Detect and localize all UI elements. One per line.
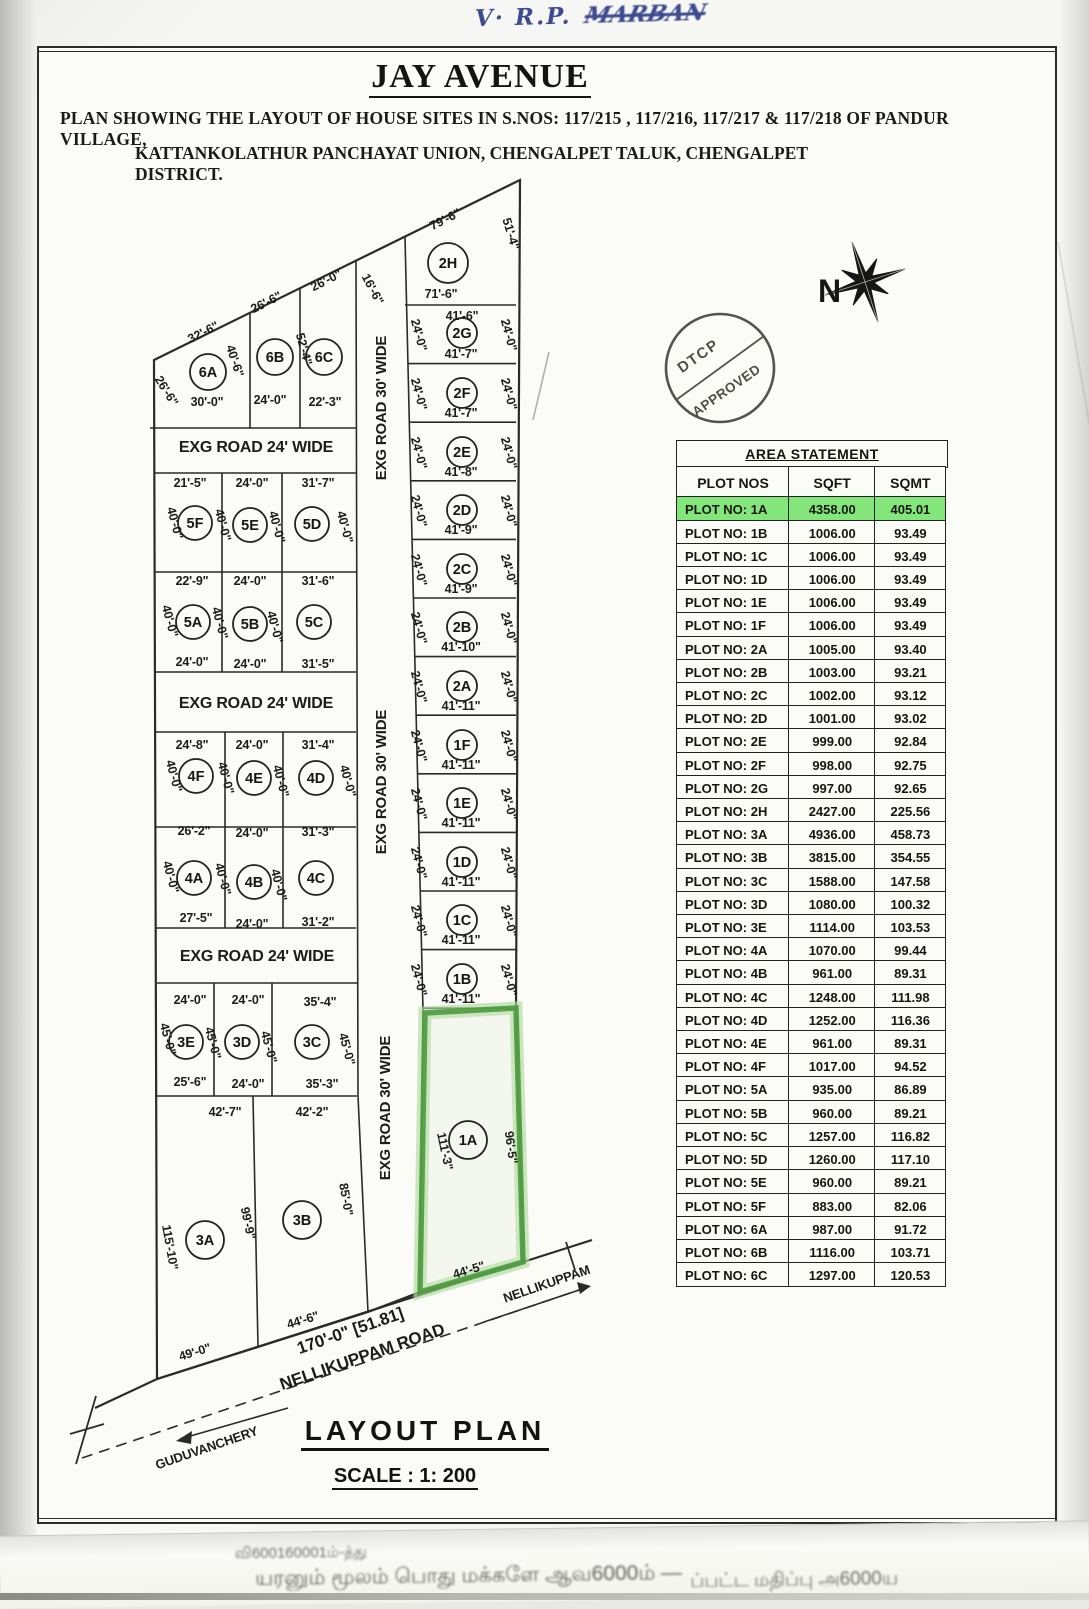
sqmt-cell: 116.82 bbox=[874, 1123, 946, 1148]
sqmt-cell: 93.02 bbox=[874, 705, 946, 730]
sqft-cell: 1080.00 bbox=[788, 891, 876, 916]
dimension-label: 41'-7" bbox=[445, 406, 478, 420]
sqmt-cell: 93.49 bbox=[874, 543, 946, 568]
dimension-label: 24'-0" bbox=[408, 610, 430, 645]
dimension-label: 41'-11" bbox=[442, 875, 481, 889]
sqft-cell: 2427.00 bbox=[788, 798, 876, 823]
dimension-label: 42'-2" bbox=[296, 1105, 329, 1119]
table-row: PLOT NO: 3A4936.00458.73 bbox=[676, 821, 948, 846]
plot-number-label: 6B bbox=[266, 350, 285, 366]
sqft-cell: 1006.00 bbox=[788, 566, 876, 591]
dimension-label: 24'-0" bbox=[498, 317, 520, 352]
sqmt-cell: 111.98 bbox=[874, 984, 946, 1009]
plot-number-label: 5F bbox=[187, 516, 204, 532]
sqmt-cell: 93.12 bbox=[874, 682, 946, 707]
plot-number-label: 5C bbox=[305, 615, 324, 631]
dimension-label: 115'-10" bbox=[159, 1224, 181, 1272]
dimension-label: 24'-0" bbox=[234, 574, 267, 588]
dimension-label: 41'-11" bbox=[442, 933, 481, 947]
plot-number-label: 5A bbox=[184, 615, 203, 631]
dimension-label: 24'-0" bbox=[176, 655, 209, 669]
dimension-label: 40'-0" bbox=[334, 509, 356, 544]
sqmt-cell: 89.31 bbox=[874, 960, 946, 985]
dimension-label: 79'-6" bbox=[427, 206, 463, 233]
dimension-label: 24'-0" bbox=[408, 728, 430, 763]
sqft-cell: 961.00 bbox=[788, 960, 876, 985]
sqft-cell: 935.00 bbox=[788, 1076, 876, 1101]
dimension-label: 24'-0" bbox=[498, 435, 520, 470]
dimension-label: 27'-5" bbox=[180, 911, 213, 925]
plot-cell: PLOT NO: 2A bbox=[676, 636, 790, 661]
tamil-text-fragment-1: வி600160001ம்-த்து bbox=[235, 1543, 367, 1564]
dimension-label: 85'-0" bbox=[336, 1182, 356, 1217]
dimension-label: 24'-0" bbox=[408, 435, 430, 470]
plot-cell: PLOT NO: 3A bbox=[676, 821, 790, 846]
area-statement-header-row: PLOT NOS SQFT SQMT bbox=[676, 466, 948, 498]
dimension-label: 45'-0" bbox=[202, 1025, 224, 1060]
dimension-label: 41'-11" bbox=[442, 699, 481, 713]
dimension-label: 41'-11" bbox=[442, 992, 481, 1006]
dimension-label: 31'-5" bbox=[302, 657, 335, 671]
dimension-label: 40'-0" bbox=[337, 763, 359, 798]
dimension-label: 24'-0" bbox=[236, 917, 269, 931]
plot-cell: PLOT NO: 2H bbox=[676, 798, 790, 823]
table-row: PLOT NO: 1E1006.0093.49 bbox=[676, 589, 948, 614]
sqmt-cell: 93.40 bbox=[874, 636, 946, 661]
plot-number-label: 5E bbox=[241, 518, 259, 534]
plot-number-label: 1D bbox=[453, 855, 472, 871]
plot-cell: PLOT NO: 2E bbox=[676, 728, 790, 753]
dimension-label: 40'-0" bbox=[163, 758, 185, 793]
sqmt-cell: 86.89 bbox=[874, 1076, 946, 1101]
table-row: PLOT NO: 1C1006.0093.49 bbox=[676, 543, 948, 568]
dimension-label: 40'-0" bbox=[159, 603, 181, 638]
table-row: PLOT NO: 2E999.0092.84 bbox=[676, 728, 948, 753]
header-sqmt: SQMT bbox=[874, 466, 946, 498]
plot-number-label: 4E bbox=[245, 771, 263, 787]
stray-pen-mark bbox=[533, 352, 549, 420]
plot-number-label: 2E bbox=[453, 445, 471, 461]
plot-cell: PLOT NO: 5C bbox=[676, 1123, 790, 1148]
plot-cell: PLOT NO: 5F bbox=[676, 1193, 790, 1218]
table-row: PLOT NO: 4F1017.0094.52 bbox=[676, 1053, 948, 1078]
table-row: PLOT NO: 1F1006.0093.49 bbox=[676, 612, 948, 637]
plot-cell: PLOT NO: 1D bbox=[676, 566, 790, 591]
plot-cell: PLOT NO: 3B bbox=[676, 844, 790, 869]
plot-cell: PLOT NO: 3E bbox=[676, 914, 790, 939]
dimension-labels-layer: EXG ROAD 24' WIDEEXG ROAD 24' WIDEEXG RO… bbox=[152, 206, 592, 1473]
table-row: PLOT NO: 4C1248.00111.98 bbox=[676, 984, 948, 1009]
dimension-label: 24'-0" bbox=[498, 493, 520, 528]
table-row: PLOT NO: 2G997.0092.65 bbox=[676, 775, 948, 800]
plot-cell: PLOT NO: 4D bbox=[676, 1007, 790, 1032]
dimension-label: 24'-0" bbox=[408, 376, 430, 411]
sqft-cell: 1588.00 bbox=[788, 868, 876, 893]
sqmt-cell: 225.56 bbox=[874, 798, 946, 823]
sqmt-cell: 89.31 bbox=[874, 1030, 946, 1055]
sqft-cell: 998.00 bbox=[788, 752, 876, 777]
sqmt-cell: 354.55 bbox=[874, 844, 946, 869]
tamil-text-fragment-2: யரனும் மூலம் பொது மக்களே ஆவ6000ம் — bbox=[255, 1561, 682, 1593]
dimension-label: 24'-0" bbox=[236, 738, 269, 752]
dimension-label: 40'-0" bbox=[266, 509, 288, 544]
plot-number-label: 2H bbox=[439, 256, 458, 272]
dimension-label: 45'-0" bbox=[336, 1031, 358, 1066]
dimension-label: 24'-8" bbox=[176, 738, 209, 752]
plot-number-label: 2A bbox=[453, 679, 472, 695]
dimension-label: EXG ROAD 30' WIDE bbox=[373, 336, 390, 481]
dimension-label: 24'-0" bbox=[408, 962, 430, 997]
sqft-cell: 987.00 bbox=[788, 1216, 876, 1241]
sqft-cell: 3815.00 bbox=[788, 844, 876, 869]
plot-cell: PLOT NO: 4F bbox=[676, 1053, 790, 1078]
table-row: PLOT NO: 6A987.0091.72 bbox=[676, 1216, 948, 1241]
sqft-cell: 1001.00 bbox=[788, 705, 876, 730]
dimension-label: 41'-11" bbox=[442, 816, 481, 830]
dimension-label: EXG ROAD 30' WIDE bbox=[377, 1036, 394, 1181]
plot-number-label: 2D bbox=[453, 503, 472, 519]
nellikuppam-direction-arrowhead bbox=[577, 1282, 591, 1294]
plot-number-label: 2B bbox=[453, 620, 472, 636]
dimension-label: 31'-4" bbox=[302, 738, 335, 752]
dimension-label: 31'-3" bbox=[302, 825, 335, 839]
plot-number-label: 3E bbox=[177, 1035, 195, 1051]
dimension-label: EXG ROAD 24' WIDE bbox=[180, 948, 335, 965]
dimension-label: 41'-9" bbox=[445, 582, 478, 596]
dimension-label: 40'-0" bbox=[212, 861, 234, 896]
dimension-label: 24'-0" bbox=[408, 317, 430, 352]
table-row: PLOT NO: 4D1252.00116.36 bbox=[676, 1007, 948, 1032]
plot-cell: PLOT NO: 3C bbox=[676, 868, 790, 893]
table-row: PLOT NO: 4E961.0089.31 bbox=[676, 1030, 948, 1055]
table-row: PLOT NO: 2C1002.0093.12 bbox=[676, 682, 948, 707]
sqmt-cell: 405.01 bbox=[874, 496, 946, 521]
plot-number-label: 1B bbox=[453, 972, 472, 988]
area-statement-title: AREA STATEMENT bbox=[676, 440, 948, 468]
plot-cell: PLOT NO: 2C bbox=[676, 682, 790, 707]
header-plot-nos: PLOT NOS bbox=[676, 466, 790, 498]
dimension-label: 41'-8" bbox=[445, 465, 478, 479]
plot-number-label: 3A bbox=[196, 1233, 215, 1249]
table-row: PLOT NO: 3B3815.00354.55 bbox=[676, 844, 948, 869]
dimension-label: 52'-4" bbox=[293, 331, 315, 366]
dimension-label: 26'-2" bbox=[178, 824, 211, 838]
sqmt-cell: 103.53 bbox=[874, 914, 946, 939]
dimension-label: 24'-0" bbox=[234, 657, 267, 671]
dimension-label: 24'-0" bbox=[174, 993, 207, 1007]
plot-number-label: 1F bbox=[454, 738, 471, 754]
dimension-label: 24'-0" bbox=[232, 1077, 265, 1091]
sqmt-cell: 120.53 bbox=[874, 1262, 946, 1287]
table-row: PLOT NO: 5B960.0089.21 bbox=[676, 1100, 948, 1125]
sqft-cell: 1116.00 bbox=[788, 1239, 876, 1264]
dimension-label: 40'-0" bbox=[212, 507, 234, 542]
table-row: PLOT NO: 2A1005.0093.40 bbox=[676, 636, 948, 661]
plot-number-label: 5B bbox=[241, 617, 260, 633]
dimension-label: 24'-0" bbox=[236, 476, 269, 490]
dimension-label: 26'-0" bbox=[308, 267, 344, 294]
sqmt-cell: 99.44 bbox=[874, 937, 946, 962]
area-statement-body: PLOT NO: 1A4358.00405.01PLOT NO: 1B1006.… bbox=[676, 496, 948, 1287]
dimension-label: EXG ROAD 30' WIDE bbox=[373, 710, 390, 855]
table-row: PLOT NO: 2F998.0092.75 bbox=[676, 752, 948, 777]
plot-cell: PLOT NO: 6A bbox=[676, 1216, 790, 1241]
sqmt-cell: 117.10 bbox=[874, 1146, 946, 1171]
plot-cell: PLOT NO: 4B bbox=[676, 960, 790, 985]
sqmt-cell: 92.84 bbox=[874, 728, 946, 753]
dimension-label: 41'-7" bbox=[445, 347, 478, 361]
plot-cell: PLOT NO: 2D bbox=[676, 705, 790, 730]
dimension-label: 40'-0" bbox=[270, 763, 292, 798]
sqft-cell: 1017.00 bbox=[788, 1053, 876, 1078]
dimension-label: 40'-0" bbox=[160, 859, 182, 894]
sqft-cell: 1006.00 bbox=[788, 543, 876, 568]
sqmt-cell: 91.72 bbox=[874, 1216, 946, 1241]
sqmt-cell: 103.71 bbox=[874, 1239, 946, 1264]
dimension-label: 21'-5" bbox=[174, 476, 207, 490]
plot-cell: PLOT NO: 1C bbox=[676, 543, 790, 568]
table-row: PLOT NO: 2D1001.0093.02 bbox=[676, 705, 948, 730]
plot-cell: PLOT NO: 2F bbox=[676, 752, 790, 777]
sqmt-cell: 93.49 bbox=[874, 520, 946, 545]
dimension-label: 45'-0" bbox=[258, 1029, 280, 1064]
dimension-label: 31'-7" bbox=[302, 476, 335, 490]
dimension-label: GUDUVANCHERY bbox=[153, 1423, 260, 1472]
dimension-label: 30'-0" bbox=[191, 395, 224, 409]
sqft-cell: 960.00 bbox=[788, 1169, 876, 1194]
dimension-label: 35'-4" bbox=[304, 995, 337, 1009]
table-row: PLOT NO: 5E960.0089.21 bbox=[676, 1169, 948, 1194]
table-row: PLOT NO: 6C1297.00120.53 bbox=[676, 1262, 948, 1287]
plot-number-label: 4C bbox=[307, 871, 326, 887]
dimension-label: 22'-9" bbox=[176, 574, 209, 588]
scanned-layout-plan-page: V· R.P.MARBAN JAY AVENUE PLAN SHOWING TH… bbox=[0, 0, 1089, 1600]
sqft-cell: 883.00 bbox=[788, 1193, 876, 1218]
plot-number-label: 4A bbox=[185, 871, 204, 887]
sqmt-cell: 93.49 bbox=[874, 589, 946, 614]
plot-cell: PLOT NO: 6C bbox=[676, 1262, 790, 1287]
dimension-label: 24'-0" bbox=[408, 669, 430, 704]
sqmt-cell: 93.21 bbox=[874, 659, 946, 684]
photo-edge bbox=[0, 1593, 1089, 1600]
sqmt-cell: 93.49 bbox=[874, 612, 946, 637]
plot-cell: PLOT NO: 2B bbox=[676, 659, 790, 684]
table-row: PLOT NO: 1B1006.0093.49 bbox=[676, 520, 948, 545]
tamil-text-fragment-3: ப்பட்ட மதிப்பு அ6000ய bbox=[690, 1568, 898, 1595]
plot-number-label: 3D bbox=[233, 1035, 252, 1051]
sqmt-cell: 93.49 bbox=[874, 566, 946, 591]
dimension-label: 49'-0" bbox=[177, 1341, 213, 1364]
area-statement-table: AREA STATEMENT PLOT NOS SQFT SQMT PLOT N… bbox=[676, 440, 948, 1287]
dimension-label: 24'-0" bbox=[232, 993, 265, 1007]
sqft-cell: 1252.00 bbox=[788, 1007, 876, 1032]
dimension-label: 24'-0" bbox=[236, 826, 269, 840]
plot-cell: PLOT NO: 5B bbox=[676, 1100, 790, 1125]
plot-cell: PLOT NO: 2G bbox=[676, 775, 790, 800]
table-row: PLOT NO: 3C1588.00147.58 bbox=[676, 868, 948, 893]
plot-number-label: 4D bbox=[307, 771, 326, 787]
sqmt-cell: 147.58 bbox=[874, 868, 946, 893]
plot-cell: PLOT NO: 4C bbox=[676, 984, 790, 1009]
sqft-cell: 1006.00 bbox=[788, 589, 876, 614]
plot-number-label: 6A bbox=[199, 365, 218, 381]
dimension-label: 35'-3" bbox=[306, 1077, 339, 1091]
dimension-label: 32'-6" bbox=[185, 319, 221, 346]
scale-note: SCALE : 1: 200 bbox=[290, 1465, 520, 1488]
plot-number-label: 5D bbox=[303, 517, 322, 533]
sqmt-cell: 89.21 bbox=[874, 1169, 946, 1194]
header-sqft: SQFT bbox=[788, 466, 876, 498]
sqft-cell: 997.00 bbox=[788, 775, 876, 800]
plot-number-label: 1E bbox=[453, 796, 471, 812]
dimension-label: 24'-0" bbox=[254, 393, 287, 407]
plot-cell: PLOT NO: 1F bbox=[676, 612, 790, 637]
sqmt-cell: 89.21 bbox=[874, 1100, 946, 1125]
sqft-cell: 1297.00 bbox=[788, 1262, 876, 1287]
sqft-cell: 1260.00 bbox=[788, 1146, 876, 1171]
plot-cell: PLOT NO: 5D bbox=[676, 1146, 790, 1171]
sqft-cell: 1006.00 bbox=[788, 612, 876, 637]
plot-number-label: 6C bbox=[315, 350, 334, 366]
dimension-label: 16'-6" bbox=[359, 271, 387, 307]
compass-rose: N bbox=[812, 229, 918, 335]
plot-number-label: 3C bbox=[303, 1035, 322, 1051]
table-row: PLOT NO: 4B961.0089.31 bbox=[676, 960, 948, 985]
dimension-label: 31'-2" bbox=[302, 915, 335, 929]
plot-number-label: 2G bbox=[452, 326, 471, 342]
dimension-label: 25'-6" bbox=[174, 1075, 207, 1089]
sqft-cell: 960.00 bbox=[788, 1100, 876, 1125]
dimension-label: 24'-0" bbox=[498, 610, 520, 645]
sqft-cell: 1005.00 bbox=[788, 636, 876, 661]
dimension-label: 45'-0" bbox=[157, 1021, 179, 1056]
dimension-label: 22'-3" bbox=[309, 395, 342, 409]
table-row: PLOT NO: 1A4358.00405.01 bbox=[676, 496, 948, 521]
layout-plan-heading: LAYOUT PLAN bbox=[270, 1415, 580, 1447]
sqmt-cell: 458.73 bbox=[874, 821, 946, 846]
plot-cell: PLOT NO: 4A bbox=[676, 937, 790, 962]
dimension-label: 41'-9" bbox=[445, 523, 478, 537]
guduvanchery-direction-arrowhead bbox=[176, 1431, 192, 1444]
sqmt-cell: 92.75 bbox=[874, 752, 946, 777]
dimension-label: 24'-0" bbox=[498, 376, 520, 411]
dimension-label: 24'-0" bbox=[408, 552, 430, 587]
dimension-label: 42'-7" bbox=[209, 1105, 242, 1119]
dimension-label: 41'-6" bbox=[446, 309, 479, 323]
paper-crease-mark bbox=[1058, 242, 1089, 428]
sqft-cell: 1257.00 bbox=[788, 1123, 876, 1148]
plot-number-label: 3B bbox=[293, 1213, 312, 1229]
dimension-label: 40'-0" bbox=[215, 760, 237, 795]
plot-number-label: 4F bbox=[188, 769, 205, 785]
dimension-label: 26'-6" bbox=[248, 289, 284, 316]
dimension-label: EXG ROAD 24' WIDE bbox=[179, 695, 334, 712]
dimension-label: 24'-0" bbox=[408, 903, 430, 938]
sqmt-cell: 82.06 bbox=[874, 1193, 946, 1218]
sqft-cell: 1002.00 bbox=[788, 682, 876, 707]
dimension-label: 41'-10" bbox=[441, 640, 481, 654]
plot-cell: PLOT NO: 5E bbox=[676, 1169, 790, 1194]
plot-cell: PLOT NO: 5A bbox=[676, 1076, 790, 1101]
sqmt-cell: 116.36 bbox=[874, 1007, 946, 1032]
sqft-cell: 4936.00 bbox=[788, 821, 876, 846]
dimension-label: 40'-0" bbox=[209, 605, 231, 640]
dimension-label: 31'-6" bbox=[302, 574, 335, 588]
dimension-label: EXG ROAD 24' WIDE bbox=[179, 439, 334, 456]
dimension-label: 71'-6" bbox=[425, 287, 458, 301]
sqft-cell: 999.00 bbox=[788, 728, 876, 753]
dimension-label: 24'-0" bbox=[408, 845, 430, 880]
table-row: PLOT NO: 5F883.0082.06 bbox=[676, 1193, 948, 1218]
sqmt-cell: 100.32 bbox=[874, 891, 946, 916]
plot-cell: PLOT NO: 3D bbox=[676, 891, 790, 916]
plot-cell: PLOT NO: 1B bbox=[676, 520, 790, 545]
table-row: PLOT NO: 3E1114.00103.53 bbox=[676, 914, 948, 939]
table-row: PLOT NO: 3D1080.00100.32 bbox=[676, 891, 948, 916]
plot-number-label: 4B bbox=[245, 875, 264, 891]
plot-cell: PLOT NO: 4E bbox=[676, 1030, 790, 1055]
table-row: PLOT NO: 4A1070.0099.44 bbox=[676, 937, 948, 962]
sqft-cell: 1114.00 bbox=[788, 914, 876, 939]
sqft-cell: 4358.00 bbox=[788, 496, 876, 521]
plot-number-label: 2F bbox=[454, 386, 471, 402]
table-row: PLOT NO: 2B1003.0093.21 bbox=[676, 659, 948, 684]
table-row: PLOT NO: 5D1260.00117.10 bbox=[676, 1146, 948, 1171]
table-row: PLOT NO: 5C1257.00116.82 bbox=[676, 1123, 948, 1148]
plot-number-label: 1A bbox=[459, 1133, 478, 1149]
sqft-cell: 1003.00 bbox=[788, 659, 876, 684]
sqft-cell: 961.00 bbox=[788, 1030, 876, 1055]
dtcp-approval-stamp: DTCP APPROVED bbox=[666, 314, 774, 422]
sqft-cell: 1248.00 bbox=[788, 984, 876, 1009]
sqmt-cell: 92.65 bbox=[874, 775, 946, 800]
plot-cell: PLOT NO: 1E bbox=[676, 589, 790, 614]
dimension-label: 24'-0" bbox=[498, 552, 520, 587]
table-row: PLOT NO: 2H2427.00225.56 bbox=[676, 798, 948, 823]
dimension-label: 24'-0" bbox=[408, 786, 430, 821]
plot-cell: PLOT NO: 6B bbox=[676, 1239, 790, 1264]
plot-number-label: 2C bbox=[453, 562, 472, 578]
table-row: PLOT NO: 1D1006.0093.49 bbox=[676, 566, 948, 591]
sqft-cell: 1070.00 bbox=[788, 937, 876, 962]
dimension-label: 26'-6" bbox=[152, 373, 181, 408]
sqmt-cell: 94.52 bbox=[874, 1053, 946, 1078]
dimension-label: 41'-11" bbox=[442, 758, 481, 772]
north-label: N bbox=[818, 273, 841, 309]
table-row: PLOT NO: 5A935.0086.89 bbox=[676, 1076, 948, 1101]
plot-cell: PLOT NO: 1A bbox=[676, 496, 790, 521]
plot-number-label: 1C bbox=[453, 913, 472, 929]
sqft-cell: 1006.00 bbox=[788, 520, 876, 545]
table-row: PLOT NO: 6B1116.00103.71 bbox=[676, 1239, 948, 1264]
